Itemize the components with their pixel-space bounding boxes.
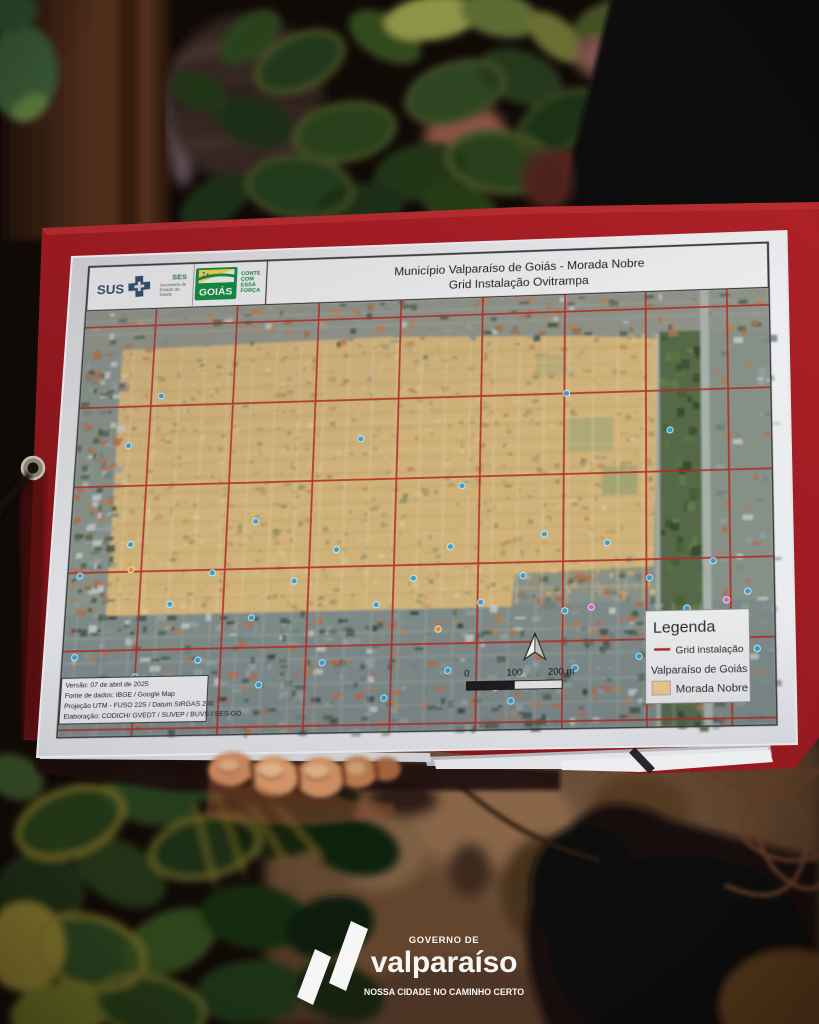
svg-text:100: 100	[506, 666, 522, 678]
svg-text:SES: SES	[172, 274, 187, 282]
svg-text:0: 0	[464, 668, 470, 679]
svg-text:Versão: 07 de abril de 2025: Versão: 07 de abril de 2025	[65, 680, 149, 689]
svg-text:Saúde: Saúde	[159, 291, 173, 297]
svg-text:SUS: SUS	[97, 282, 125, 297]
svg-text:Valparaíso de Goiás: Valparaíso de Goiás	[651, 663, 748, 676]
svg-text:Grid instalação: Grid instalação	[675, 643, 743, 656]
svg-text:200 m: 200 m	[548, 665, 575, 677]
svg-text:Legenda: Legenda	[653, 617, 716, 636]
svg-text:FORÇA: FORÇA	[240, 287, 260, 294]
svg-text:Morada Nobre: Morada Nobre	[676, 682, 749, 696]
svg-text:GOIÁS: GOIÁS	[199, 285, 233, 298]
